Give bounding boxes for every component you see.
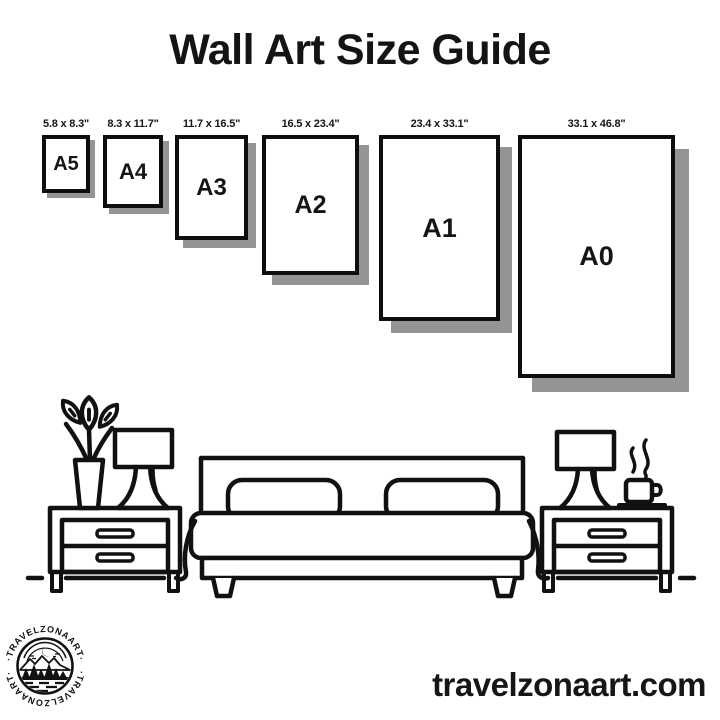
bed-leg xyxy=(494,578,515,596)
website-url: travelzonaart.com xyxy=(432,666,706,704)
nightstand-right-leg xyxy=(661,572,670,591)
paper-a0-label: A0 xyxy=(579,241,614,272)
paper-a1-label: A1 xyxy=(422,213,457,244)
paper-a2-label: A2 xyxy=(295,191,327,220)
travelzonaart-logo: ·TRAVELZONAART· ·TRAVELZONAART· xyxy=(2,623,88,709)
paper-a0: 33.1 x 46.8" A0 xyxy=(518,135,675,378)
lamp-base-detail xyxy=(595,472,598,492)
plant-vase-icon xyxy=(59,397,122,508)
steam-icon xyxy=(644,440,648,477)
paper-a0-dimensions: 33.1 x 46.8" xyxy=(568,118,626,130)
nightstand-left-leg xyxy=(52,572,61,591)
paper-a5-dimensions: 5.8 x 8.3" xyxy=(43,118,89,130)
paper-a1: 23.4 x 33.1" A1 xyxy=(379,135,500,321)
paper-a5-sheet: A5 xyxy=(42,135,90,193)
lamp-base xyxy=(560,469,610,508)
treeline-base xyxy=(21,677,69,680)
paper-a4-label: A4 xyxy=(119,159,147,185)
paper-a3-dimensions: 11.7 x 16.5" xyxy=(183,118,240,130)
lamp-shade xyxy=(115,430,172,467)
paper-a3-label: A3 xyxy=(196,174,227,202)
plant-stem xyxy=(66,424,87,460)
plant-leaf xyxy=(95,401,121,430)
paper-a3: 11.7 x 16.5" A3 xyxy=(175,135,248,240)
plant-leaf xyxy=(82,397,96,429)
paper-a4-dimensions: 8.3 x 11.7" xyxy=(107,118,158,130)
lamp-shade xyxy=(557,432,614,469)
paper-a2: 16.5 x 23.4" A2 xyxy=(262,135,359,275)
lamp-base-detail xyxy=(153,470,156,490)
table-lamp-icon xyxy=(557,432,614,508)
bedroom-illustration xyxy=(20,382,700,602)
paper-a5-label: A5 xyxy=(53,153,79,176)
double-bed-icon xyxy=(176,458,548,596)
paper-a0-sheet: A0 xyxy=(518,135,675,378)
cup-body xyxy=(626,480,652,502)
paper-a2-sheet: A2 xyxy=(262,135,359,275)
vase xyxy=(75,460,103,508)
bed-frame xyxy=(202,558,522,578)
paper-a2-dimensions: 16.5 x 23.4" xyxy=(282,118,340,130)
bed-mattress xyxy=(191,513,533,558)
table-lamp-icon xyxy=(115,430,172,508)
page-title: Wall Art Size Guide xyxy=(0,24,720,76)
paper-a3-sheet: A3 xyxy=(175,135,248,240)
paper-a4-sheet: A4 xyxy=(103,135,163,208)
nightstand-right-leg xyxy=(544,572,553,591)
steam-icon xyxy=(631,448,634,472)
paper-a1-dimensions: 23.4 x 33.1" xyxy=(411,118,469,130)
bed-leg xyxy=(213,578,234,596)
plant-stem xyxy=(89,430,90,460)
lamp-base xyxy=(118,467,168,508)
paper-a4: 8.3 x 11.7" A4 xyxy=(103,135,163,208)
plant-stem xyxy=(93,428,112,460)
paper-a1-sheet: A1 xyxy=(379,135,500,321)
paper-a5: 5.8 x 8.3" A5 xyxy=(42,135,90,193)
nightstand-left-leg xyxy=(169,572,178,591)
coffee-cup-icon xyxy=(619,440,665,505)
